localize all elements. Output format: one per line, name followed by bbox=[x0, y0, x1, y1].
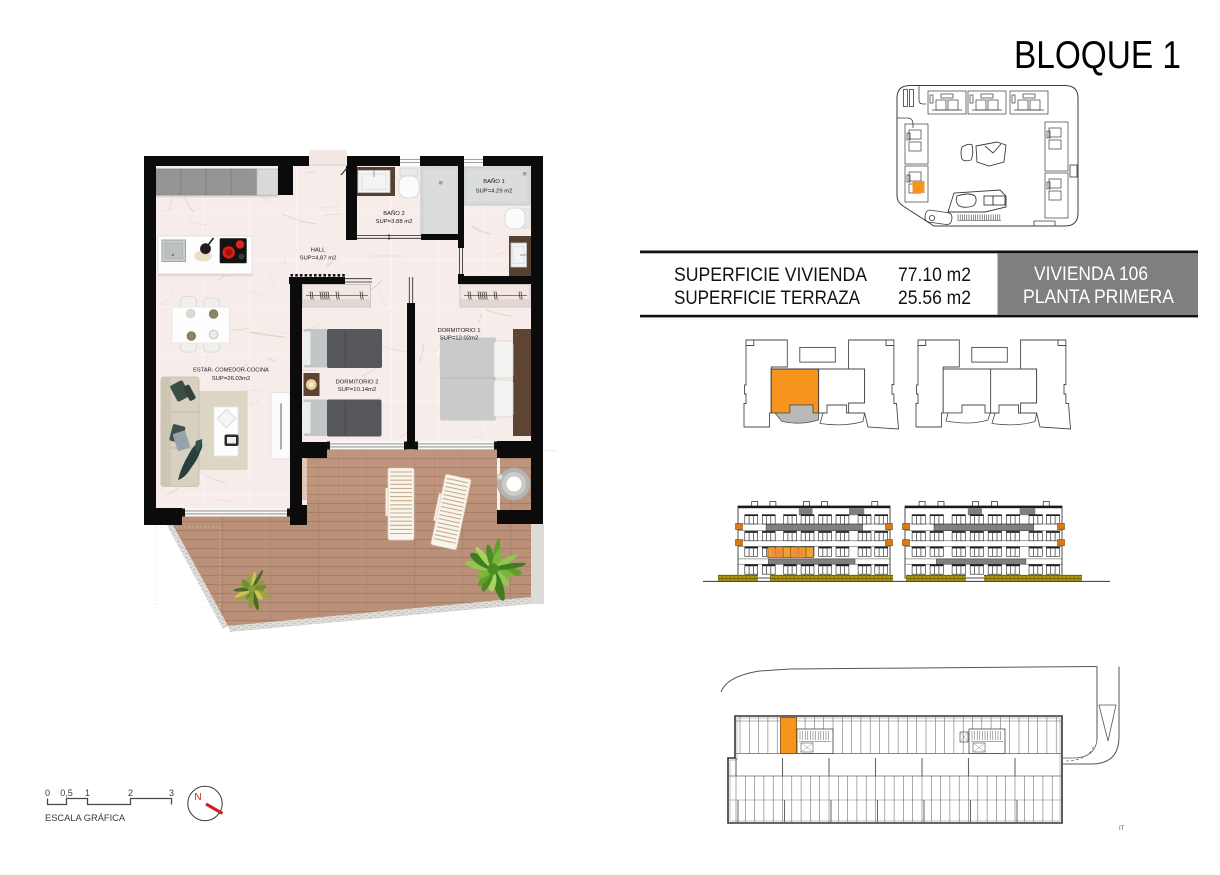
svg-text:SUPERFICIE VIVIENDA: SUPERFICIE VIVIENDA bbox=[674, 264, 867, 286]
svg-text:SUP=3.88 m2: SUP=3.88 m2 bbox=[376, 219, 413, 225]
svg-text:3: 3 bbox=[169, 788, 174, 798]
svg-text:25.56 m2: 25.56 m2 bbox=[898, 287, 971, 309]
svg-text:HALL: HALL bbox=[311, 248, 326, 254]
svg-text:ESTAR- COMEDOR-COCINA: ESTAR- COMEDOR-COCINA bbox=[193, 368, 269, 374]
svg-text:ESCALA GRÁFICA: ESCALA GRÁFICA bbox=[45, 813, 126, 823]
svg-text:VIVIENDA 106: VIVIENDA 106 bbox=[1034, 263, 1148, 285]
svg-text:SUP=12.02m2: SUP=12.02m2 bbox=[440, 336, 478, 342]
svg-text:PLANTA PRIMERA: PLANTA PRIMERA bbox=[1023, 286, 1174, 308]
svg-text:0,5: 0,5 bbox=[60, 788, 73, 798]
svg-text:SUP=4.29 m2: SUP=4.29 m2 bbox=[476, 189, 513, 195]
svg-text:BLOQUE 1: BLOQUE 1 bbox=[1014, 34, 1181, 77]
svg-text:2: 2 bbox=[128, 788, 133, 798]
svg-text:SUP=26.03m2: SUP=26.03m2 bbox=[212, 376, 250, 382]
svg-text:BAÑO 1: BAÑO 1 bbox=[483, 178, 505, 185]
svg-text:DORMITORIO 2: DORMITORIO 2 bbox=[335, 380, 378, 386]
svg-text:BAÑO 2: BAÑO 2 bbox=[383, 210, 405, 217]
svg-text:77.10 m2: 77.10 m2 bbox=[898, 264, 971, 286]
svg-text:IT: IT bbox=[1119, 826, 1125, 832]
svg-text:1: 1 bbox=[85, 788, 90, 798]
svg-text:SUP=10.14m2: SUP=10.14m2 bbox=[338, 387, 376, 393]
svg-text:SUP=4,87 m2: SUP=4,87 m2 bbox=[300, 256, 337, 262]
svg-text:SUPERFICIE TERRAZA: SUPERFICIE TERRAZA bbox=[674, 287, 860, 309]
svg-text:0: 0 bbox=[45, 788, 50, 798]
svg-text:DORMITORIO 1: DORMITORIO 1 bbox=[437, 328, 480, 334]
svg-text:N: N bbox=[194, 792, 201, 803]
